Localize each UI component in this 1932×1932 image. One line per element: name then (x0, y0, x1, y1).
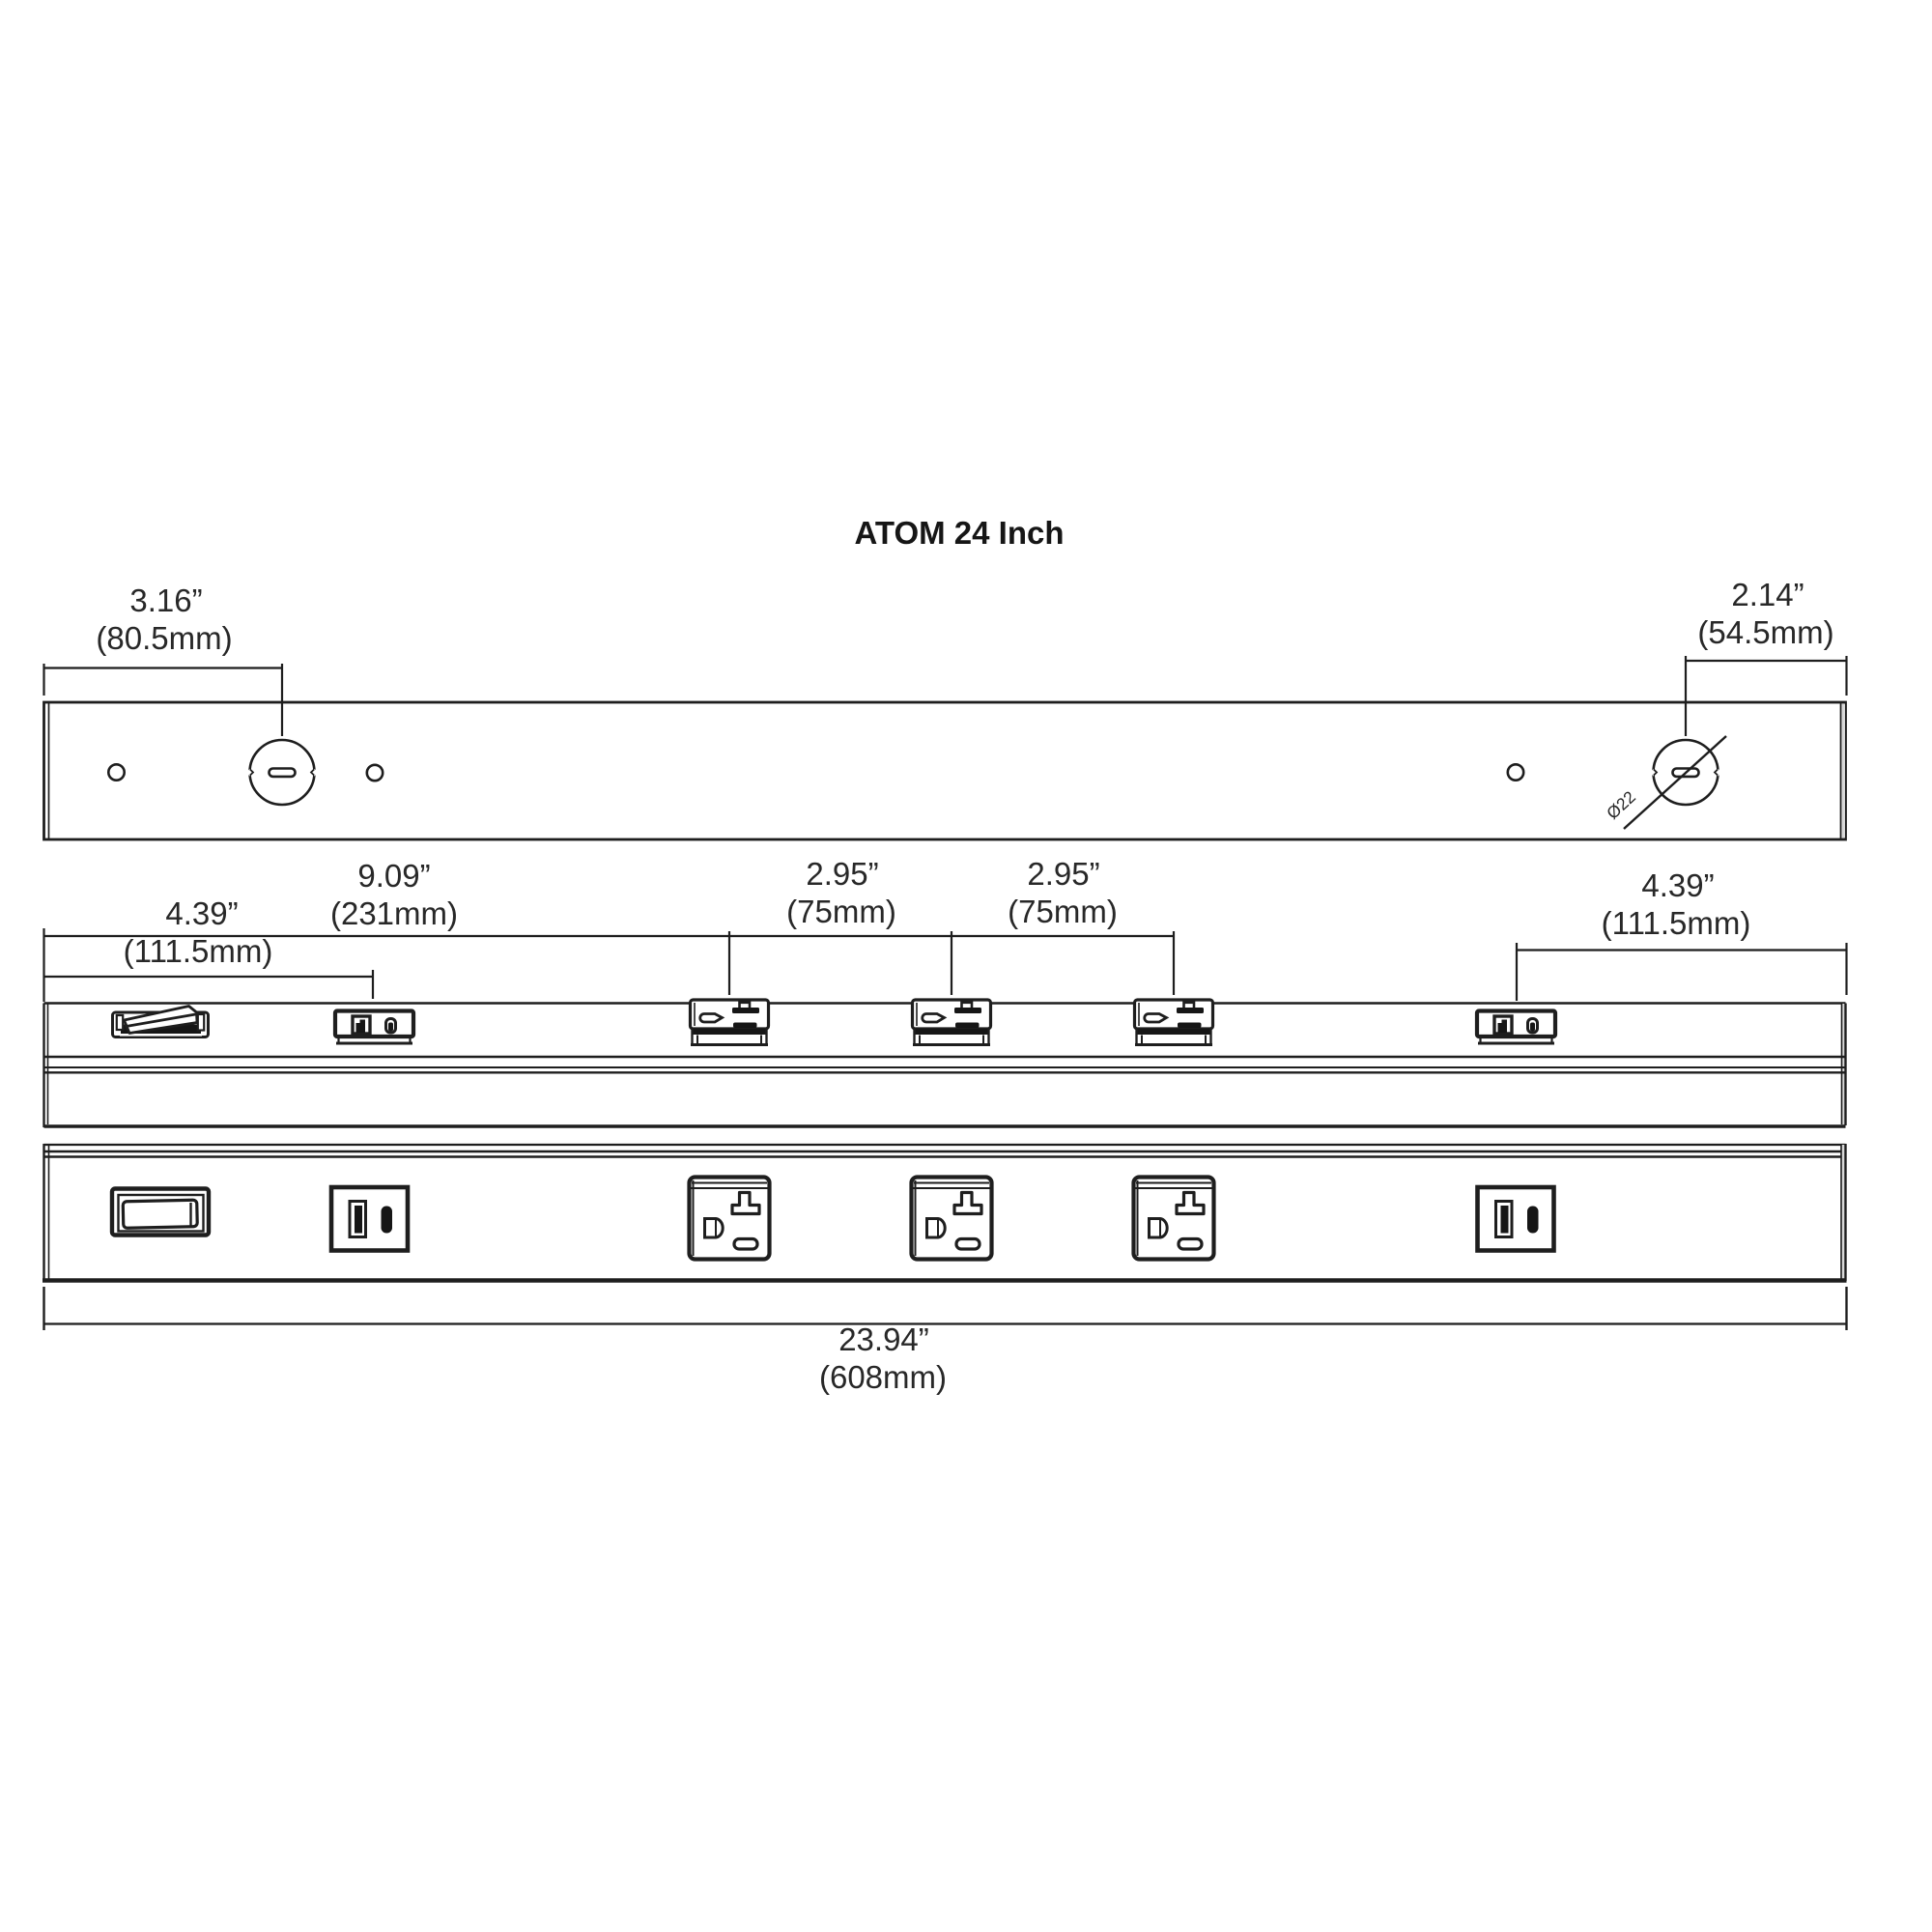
svg-text:3.16”: 3.16” (129, 582, 202, 618)
svg-text:(608mm): (608mm) (819, 1359, 947, 1395)
svg-text:2.95”: 2.95” (1027, 856, 1099, 892)
svg-text:ATOM 24 Inch: ATOM 24 Inch (855, 515, 1065, 551)
svg-text:4.39”: 4.39” (1641, 867, 1714, 903)
svg-text:(80.5mm): (80.5mm) (96, 620, 232, 656)
svg-text:2.14”: 2.14” (1731, 577, 1804, 612)
svg-text:Ø22: Ø22 (1603, 787, 1639, 823)
svg-text:4.39”: 4.39” (165, 895, 238, 931)
svg-text:23.94”: 23.94” (838, 1321, 929, 1357)
svg-text:(75mm): (75mm) (1008, 894, 1118, 929)
svg-text:(231mm): (231mm) (330, 895, 458, 931)
svg-text:(75mm): (75mm) (786, 894, 896, 929)
svg-text:(54.5mm): (54.5mm) (1697, 614, 1833, 650)
svg-text:2.95”: 2.95” (806, 856, 878, 892)
svg-text:(111.5mm): (111.5mm) (1602, 905, 1751, 941)
svg-text:(111.5mm): (111.5mm) (124, 933, 273, 969)
svg-text:9.09”: 9.09” (357, 858, 430, 894)
